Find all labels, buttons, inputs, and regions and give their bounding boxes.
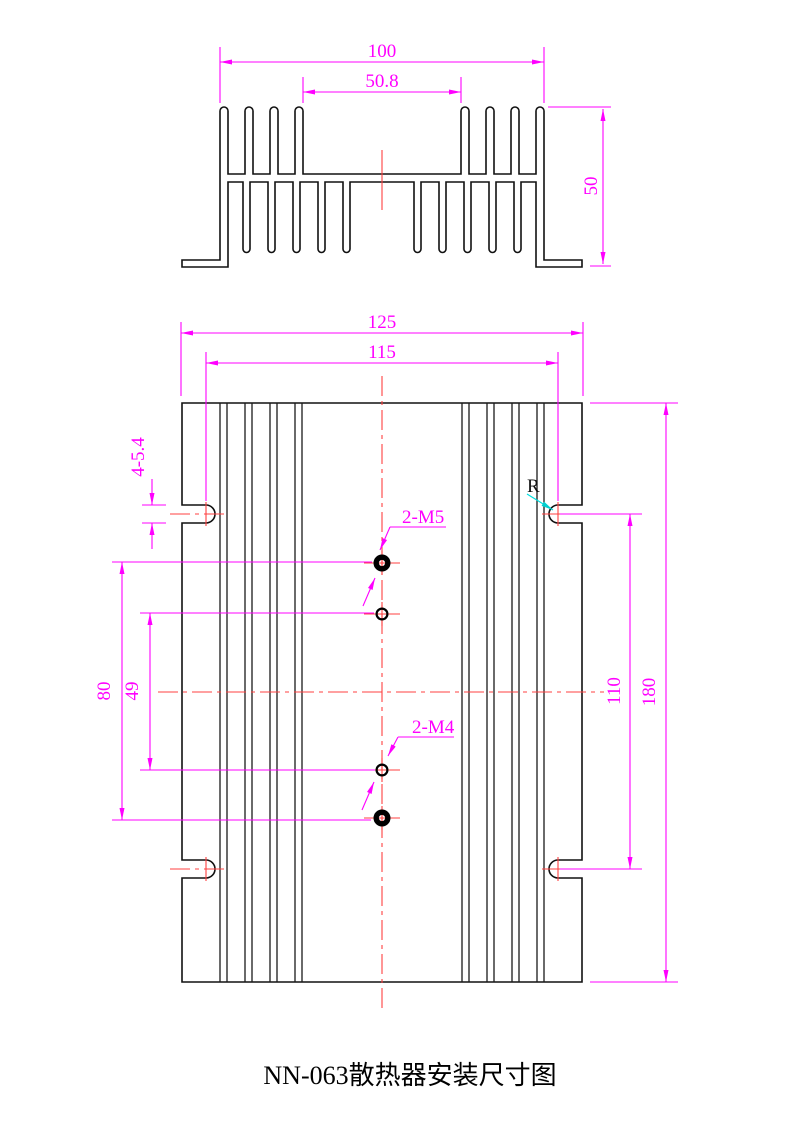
dim-module-width: 50.8 — [303, 71, 461, 103]
dim-label: 110 — [604, 677, 625, 705]
drawing-page: 100 50.8 50 — [0, 0, 794, 1123]
dim-label: 100 — [368, 41, 397, 62]
plan-view: 125 115 4-5.4 80 49 — [94, 312, 678, 1012]
dim-slot-size: 4-5.4 — [128, 437, 166, 549]
section-view: 100 50.8 50 — [182, 41, 611, 267]
dim-label: 49 — [122, 682, 143, 701]
dim-label: 125 — [368, 312, 397, 333]
callout-label: 2-M4 — [412, 717, 455, 738]
drawing-title: NN-063散热器安装尺寸图 — [263, 1061, 556, 1090]
dim-label: 180 — [639, 678, 660, 707]
dim-label: 115 — [368, 342, 396, 363]
radius-label: R — [527, 476, 540, 497]
dim-section-height: 50 — [548, 107, 611, 266]
dim-label: 80 — [94, 682, 115, 701]
dim-label: 4-5.4 — [128, 437, 149, 477]
drawing-canvas: 100 50.8 50 — [0, 0, 794, 1123]
callout-label: 2-M5 — [402, 507, 444, 528]
dim-label: 50.8 — [365, 71, 398, 92]
dim-label: 50 — [581, 177, 602, 196]
